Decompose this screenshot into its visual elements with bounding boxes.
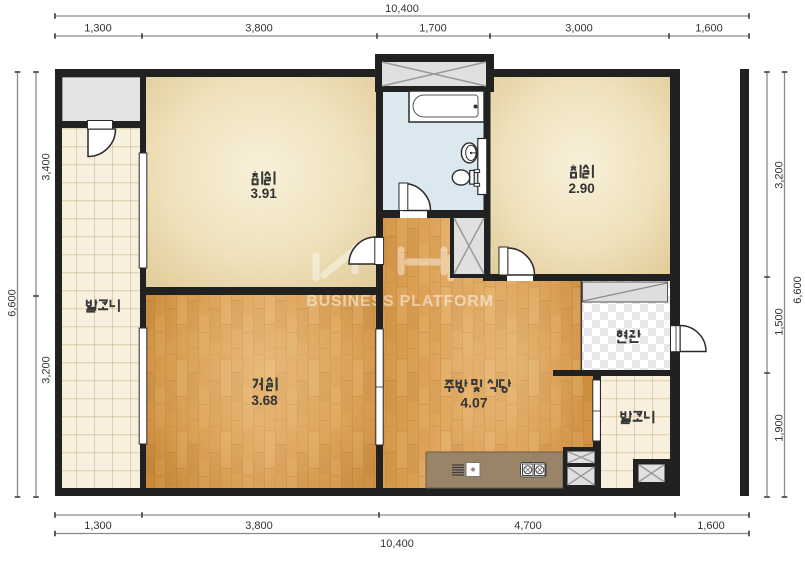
svg-text:1,600: 1,600 <box>697 520 725 532</box>
svg-text:6,600: 6,600 <box>7 289 19 317</box>
svg-text:10,400: 10,400 <box>385 3 419 15</box>
svg-text:4.07: 4.07 <box>460 395 487 411</box>
svg-text:2.90: 2.90 <box>568 181 594 196</box>
svg-text:1,300: 1,300 <box>84 520 112 532</box>
svg-text:4,700: 4,700 <box>514 520 542 532</box>
svg-text:3,000: 3,000 <box>565 23 593 35</box>
svg-text:3,800: 3,800 <box>245 23 273 35</box>
svg-text:1,600: 1,600 <box>695 23 723 35</box>
svg-text:1,300: 1,300 <box>84 23 112 35</box>
svg-text:3,400: 3,400 <box>41 153 53 181</box>
svg-text:6,600: 6,600 <box>792 276 804 304</box>
svg-text:3,200: 3,200 <box>41 356 53 384</box>
svg-text:3,200: 3,200 <box>774 161 786 189</box>
svg-text:3.68: 3.68 <box>251 393 278 408</box>
svg-text:1,500: 1,500 <box>774 308 786 336</box>
svg-text:10,400: 10,400 <box>380 538 414 550</box>
svg-text:3.91: 3.91 <box>250 186 277 201</box>
svg-text:1,700: 1,700 <box>419 23 447 35</box>
svg-text:BUSINESS PLATFORM: BUSINESS PLATFORM <box>306 293 494 310</box>
svg-text:3,800: 3,800 <box>245 520 273 532</box>
svg-text:1,900: 1,900 <box>774 414 786 442</box>
